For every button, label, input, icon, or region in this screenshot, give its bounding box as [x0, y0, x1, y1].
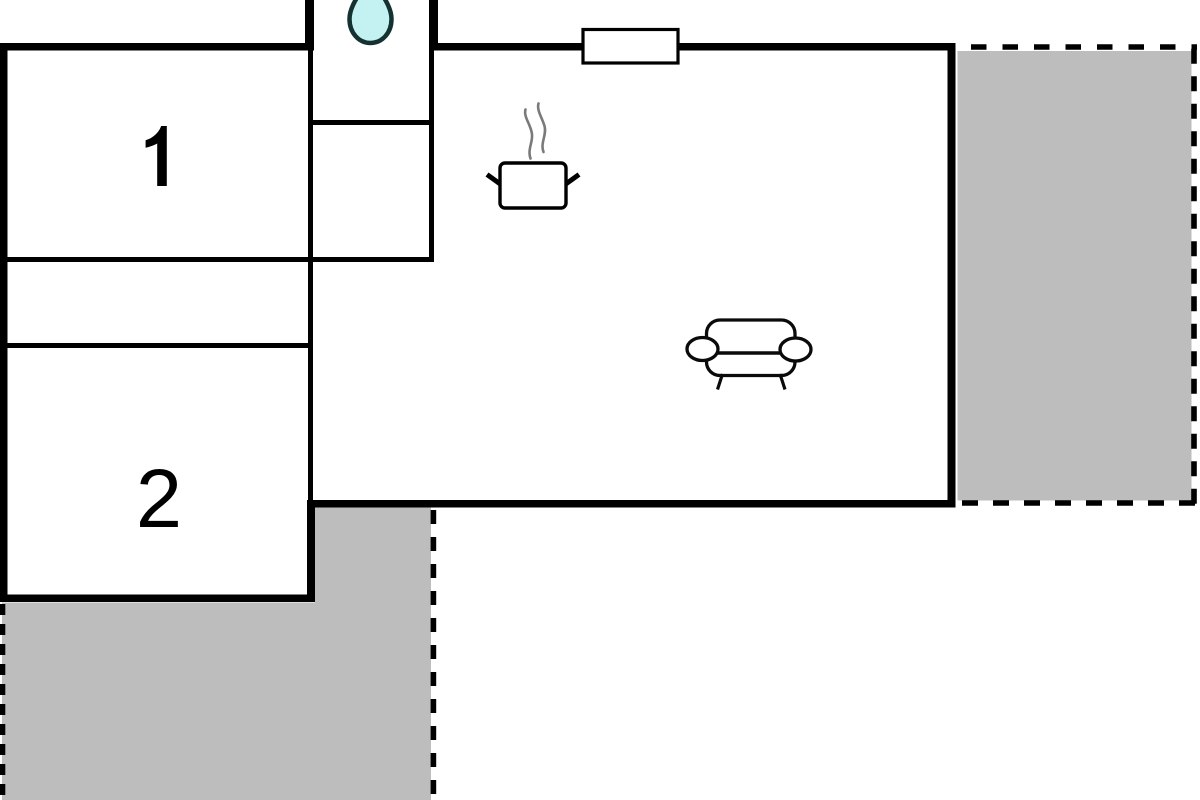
svg-text:2: 2 — [136, 452, 182, 545]
